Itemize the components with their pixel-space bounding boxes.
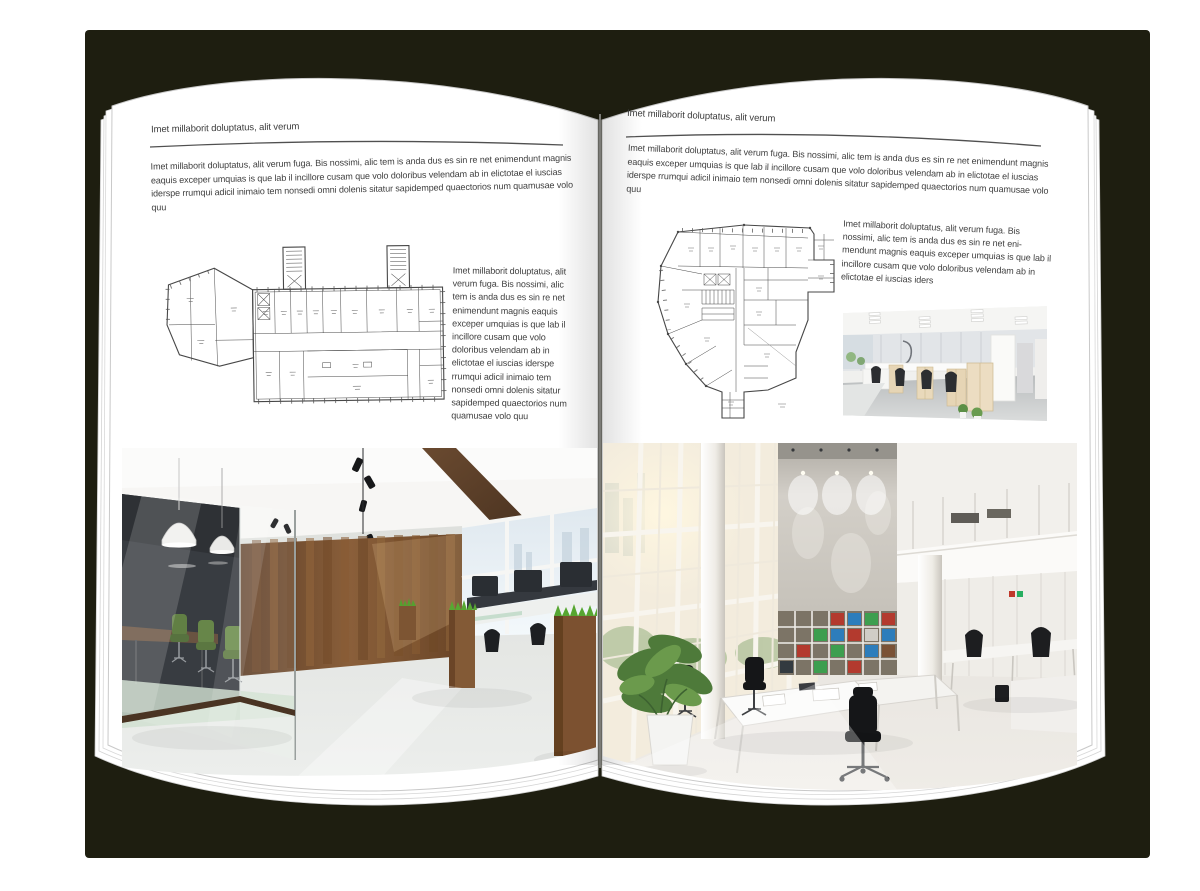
floor-plan-left	[156, 225, 453, 419]
office-photo-small	[843, 305, 1047, 421]
floor-plan-right	[648, 220, 838, 422]
office-photo-left	[122, 448, 597, 777]
left-page-intro: Imet millaborit doluptatus, alit verum f…	[150, 151, 585, 214]
magazine-mockup: Imet millaborit doluptatus, alit verum I…	[0, 0, 1200, 891]
office-photo-right	[603, 443, 1077, 791]
left-header-rule	[149, 137, 565, 151]
right-plan-caption: Imet millaborit doluptatus, alit verum f…	[841, 217, 1054, 292]
left-plan-caption: Imet millaborit doluptatus, alit verum f…	[451, 264, 572, 424]
